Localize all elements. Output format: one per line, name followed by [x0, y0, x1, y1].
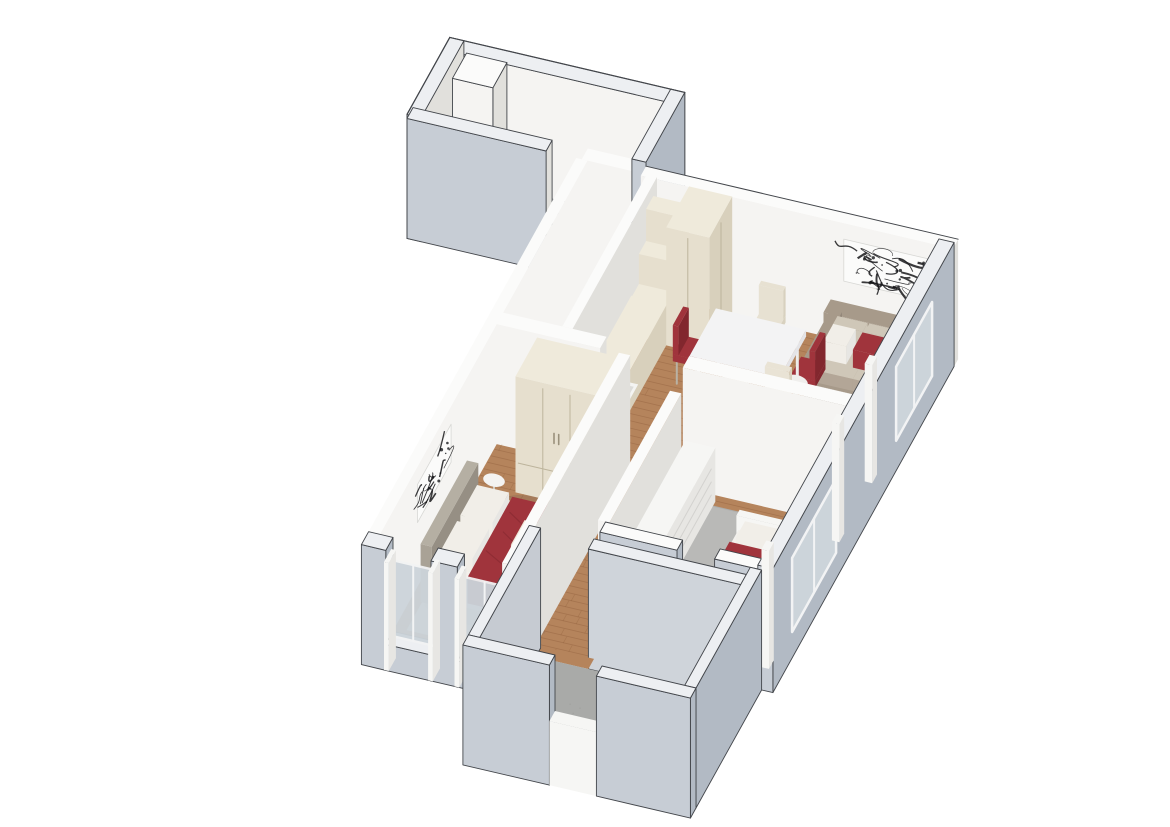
apartment-floorplan-3d [0, 0, 1170, 827]
bathroom-2 [463, 525, 762, 818]
floorplan-render-canvas [0, 0, 1170, 827]
